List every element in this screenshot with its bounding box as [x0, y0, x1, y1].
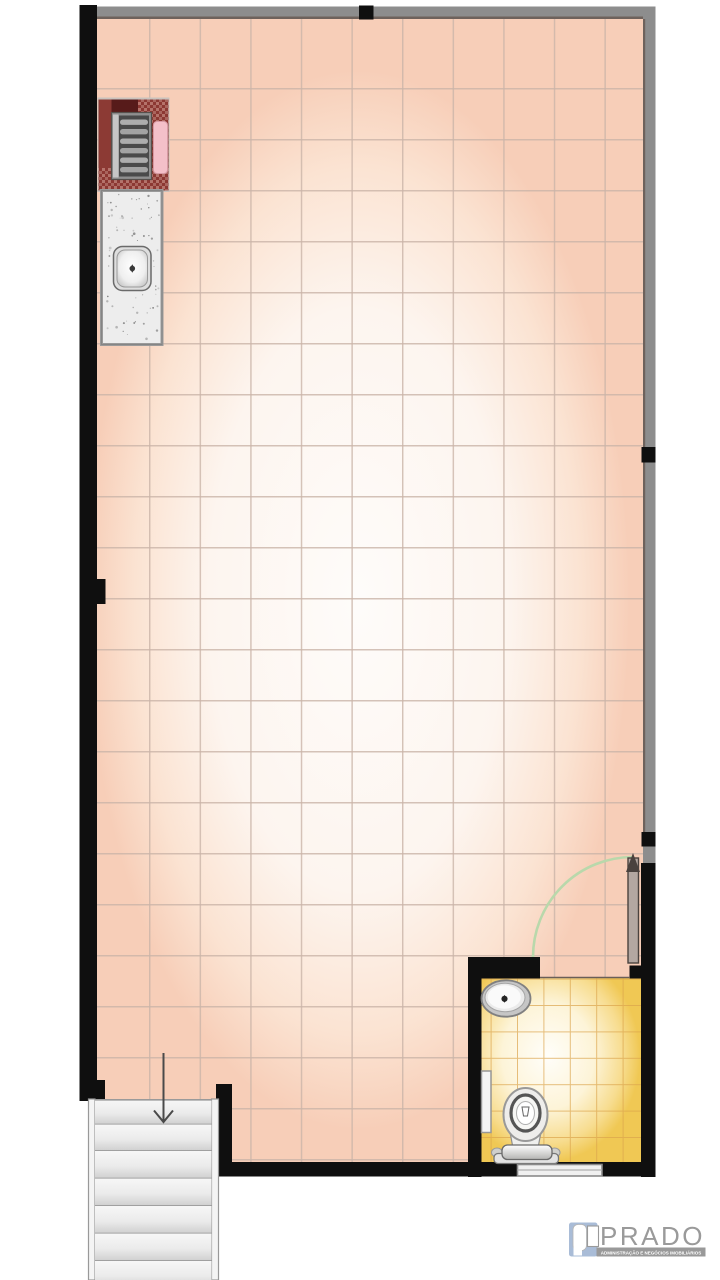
svg-text:ADMINISTRAÇÃO E NEGÓCIOS IMOBI: ADMINISTRAÇÃO E NEGÓCIOS IMOBILIÁRIOS — [601, 1249, 702, 1256]
svg-text:PRADO: PRADO — [600, 1221, 705, 1251]
